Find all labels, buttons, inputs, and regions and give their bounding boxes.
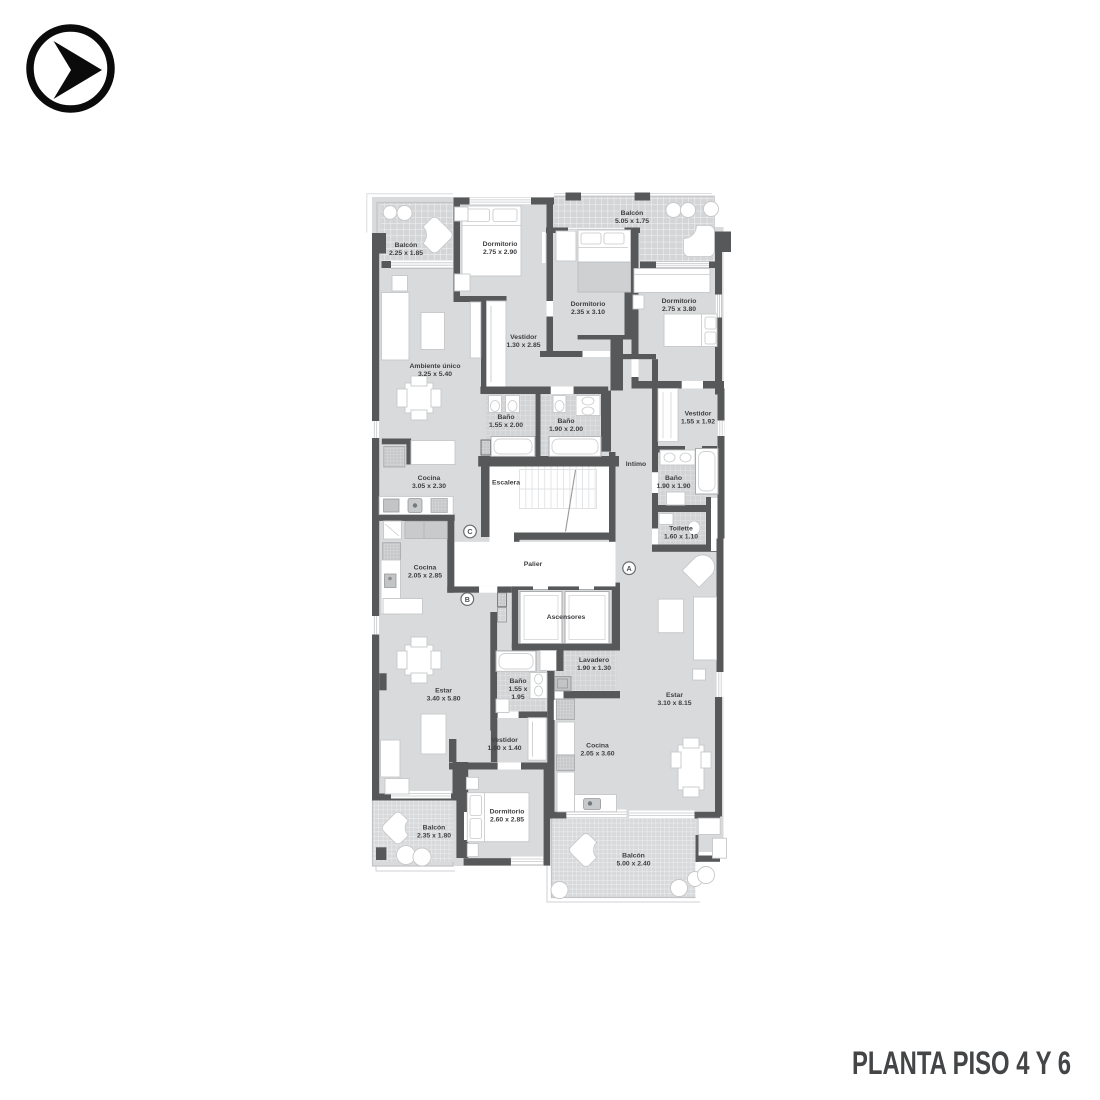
svg-text:Balcón: Balcón (621, 210, 644, 217)
svg-text:Palier: Palier (524, 561, 543, 568)
svg-text:Baño: Baño (665, 475, 682, 482)
svg-text:Dormitorio: Dormitorio (571, 301, 606, 308)
svg-text:Dormitorio: Dormitorio (490, 809, 525, 816)
svg-text:Baño: Baño (510, 678, 527, 685)
svg-text:2.75 x 3.80: 2.75 x 3.80 (662, 306, 696, 313)
svg-text:2.75 x 2.90: 2.75 x 2.90 (483, 249, 517, 256)
svg-text:5.00 x 2.40: 5.00 x 2.40 (616, 860, 650, 867)
svg-text:Lavadero: Lavadero (579, 657, 609, 664)
svg-text:Escalera: Escalera (492, 480, 520, 487)
svg-text:Ascensores: Ascensores (547, 614, 586, 621)
svg-text:Balcón: Balcón (423, 825, 446, 832)
svg-text:1.90 x 2.00: 1.90 x 2.00 (549, 426, 583, 433)
svg-text:Dormitorio: Dormitorio (662, 298, 697, 305)
svg-text:5.05 x 1.75: 5.05 x 1.75 (615, 218, 649, 225)
svg-text:1.55 x 2.00: 1.55 x 2.00 (489, 422, 523, 429)
svg-text:Estar: Estar (666, 692, 683, 699)
svg-text:1.95: 1.95 (511, 694, 524, 701)
svg-text:Balcón: Balcón (395, 242, 418, 249)
svg-text:3.40 x 5.80: 3.40 x 5.80 (427, 695, 461, 702)
svg-text:2.35 x 1.80: 2.35 x 1.80 (417, 832, 451, 839)
svg-text:2.25 x 1.85: 2.25 x 1.85 (389, 250, 423, 257)
svg-text:C: C (467, 527, 472, 536)
svg-text:Baño: Baño (558, 418, 575, 425)
svg-text:2.60 x 2.85: 2.60 x 2.85 (490, 816, 524, 823)
svg-text:Vestidor: Vestidor (510, 334, 537, 341)
svg-text:A: A (626, 564, 631, 573)
svg-text:Balcón: Balcón (622, 853, 645, 860)
svg-text:1.60 x 1.10: 1.60 x 1.10 (664, 533, 698, 540)
svg-text:2.35 x 3.10: 2.35 x 3.10 (571, 309, 605, 316)
svg-text:Toilette: Toilette (669, 526, 693, 533)
svg-text:3.05 x 2.30: 3.05 x 2.30 (412, 483, 446, 490)
svg-text:Baño: Baño (498, 414, 515, 421)
svg-text:Ambiente único: Ambiente único (410, 363, 461, 370)
svg-text:1.30 x 2.85: 1.30 x 2.85 (506, 342, 540, 349)
svg-text:2.05 x 2.85: 2.05 x 2.85 (408, 572, 442, 579)
svg-text:Vestidor: Vestidor (491, 737, 518, 744)
svg-text:1.00 x 1.40: 1.00 x 1.40 (487, 745, 521, 752)
svg-text:3.25 x 5.40: 3.25 x 5.40 (418, 371, 452, 378)
svg-text:Estar: Estar (435, 688, 452, 695)
svg-text:Vestidor: Vestidor (685, 411, 712, 418)
svg-text:Cocina: Cocina (418, 475, 441, 482)
svg-text:1.55 x: 1.55 x (509, 686, 528, 693)
svg-text:2.05 x 3.60: 2.05 x 3.60 (580, 750, 614, 757)
svg-text:1.90 x 1.90: 1.90 x 1.90 (656, 483, 690, 490)
svg-text:1.90 x 1.30: 1.90 x 1.30 (577, 665, 611, 672)
svg-text:1.55 x 1.92: 1.55 x 1.92 (681, 418, 715, 425)
svg-text:Cocina: Cocina (586, 743, 609, 750)
svg-text:3.10 x 8.15: 3.10 x 8.15 (657, 700, 691, 707)
svg-text:Cocina: Cocina (414, 565, 437, 572)
svg-text:Dormitorio: Dormitorio (483, 241, 518, 248)
svg-text:B: B (465, 595, 470, 604)
svg-text:Intimo: Intimo (626, 461, 646, 468)
